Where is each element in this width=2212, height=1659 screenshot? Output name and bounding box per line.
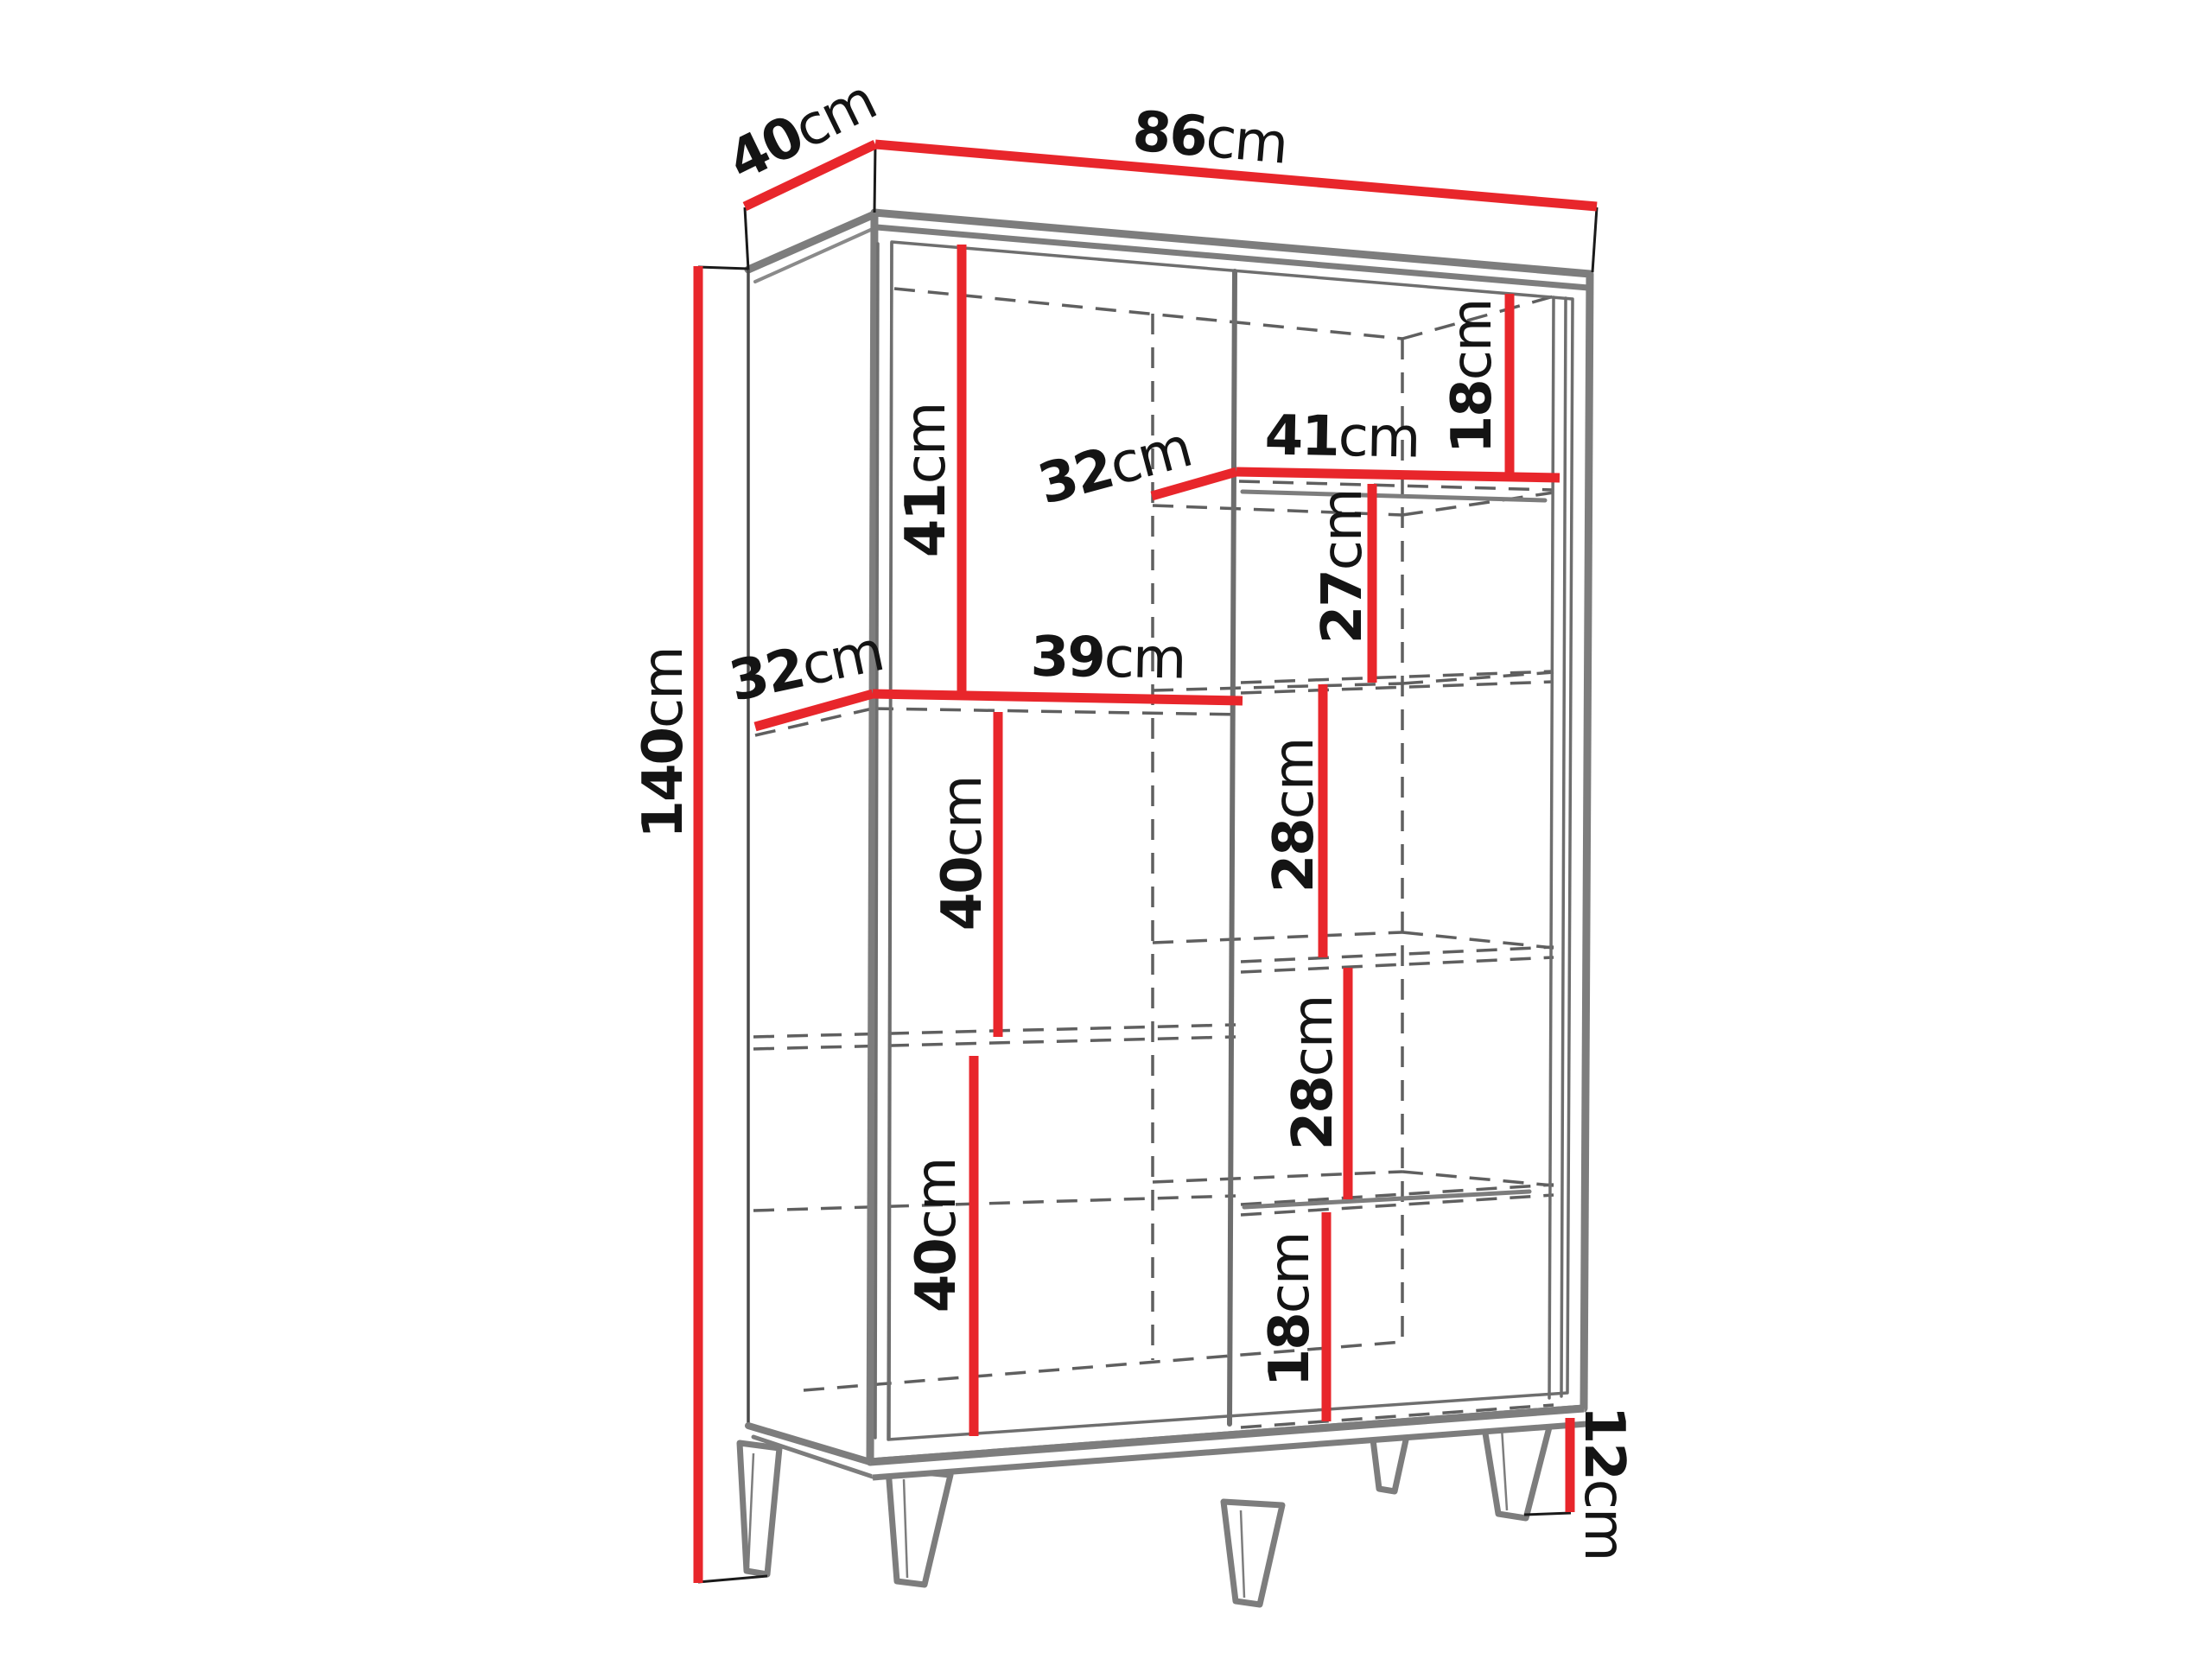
label-mid-shelf-width: 39cm <box>1030 629 1185 687</box>
label-right-gap-28-upper-value: 28 <box>1262 819 1326 893</box>
label-top-shelf-width: 41cm <box>1264 408 1420 466</box>
tick-height-bottom <box>698 1576 767 1582</box>
label-left-mid-gap-value: 40 <box>931 857 995 931</box>
label-left-mid-gap: 40cm <box>935 777 990 931</box>
leg-center <box>1224 1502 1282 1605</box>
tick-height-top <box>698 267 748 269</box>
label-right-bottom-gap-unit: cm <box>1258 1233 1322 1314</box>
leg-front-left <box>888 1469 950 1585</box>
tick-leg-bottom <box>1524 1513 1571 1515</box>
tick-top-front-corner <box>874 145 875 213</box>
label-right-gap-27-value: 27 <box>1311 570 1375 644</box>
right-wall-inner-b <box>1561 298 1566 1396</box>
dimension-diagram: 40cm 86cm 140cm 18cm 32cm 41cm 41cm 27cm… <box>0 0 2212 1659</box>
label-left-top-gap: 41cm <box>899 404 954 558</box>
label-right-top-gap-value: 18 <box>1440 380 1504 454</box>
tick-width-right <box>1592 207 1597 272</box>
tick-depth-back <box>745 207 748 270</box>
right-shelf3-back <box>1153 932 1402 943</box>
side-panel-face <box>748 213 874 1462</box>
right-shelf4-depth <box>1402 1172 1554 1185</box>
right-wall-inner-a <box>1549 297 1554 1398</box>
label-left-mid-gap-unit: cm <box>931 777 995 858</box>
label-mid-shelf-width-unit: cm <box>1103 626 1185 692</box>
dim-line-39-mid-shelf <box>873 694 1243 701</box>
middle-divider <box>1230 271 1235 1424</box>
label-left-top-gap-value: 41 <box>894 484 958 557</box>
side-panel <box>748 213 874 1477</box>
label-top-width-value: 86 <box>1130 99 1209 169</box>
label-right-top-gap-unit: cm <box>1440 300 1504 381</box>
label-right-gap-28-lower: 28cm <box>1286 996 1341 1151</box>
label-right-gap-27: 27cm <box>1315 490 1370 645</box>
label-right-gap-28-upper: 28cm <box>1267 739 1322 893</box>
label-left-top-gap-unit: cm <box>894 404 958 485</box>
label-top-shelf-width-value: 41 <box>1264 404 1338 468</box>
label-mid-shelf-width-value: 39 <box>1030 625 1104 690</box>
label-right-top-gap: 18cm <box>1445 300 1500 454</box>
right-shelf1-front-solid <box>1243 492 1545 500</box>
label-top-width-unit: cm <box>1204 106 1290 177</box>
label-left-bottom-gap-unit: cm <box>905 1159 969 1240</box>
cabinet-drawing <box>0 0 2212 1659</box>
right-shelf2-back <box>1153 683 1402 690</box>
label-leg-height: 12cm <box>1576 1406 1631 1560</box>
label-right-gap-28-lower-value: 28 <box>1281 1077 1345 1150</box>
right-shelf3-top <box>1241 947 1554 962</box>
back-top-edge <box>894 289 1402 339</box>
right-shelf3-depth <box>1402 932 1554 948</box>
label-right-gap-28-lower-unit: cm <box>1281 996 1345 1077</box>
label-left-bottom-gap: 40cm <box>909 1159 964 1313</box>
leg-back-left <box>740 1443 779 1574</box>
label-top-shelf-width-unit: cm <box>1338 405 1420 471</box>
left-wall-inner-b <box>889 243 892 1439</box>
label-top-width: 86cm <box>1130 104 1288 172</box>
label-height: 140cm <box>636 647 691 838</box>
label-left-bottom-gap-value: 40 <box>905 1239 969 1313</box>
dim-line-41-top-shelf <box>1236 472 1560 478</box>
label-right-bottom-gap: 18cm <box>1262 1233 1318 1388</box>
left-shelf-upper-underside <box>873 709 1243 715</box>
right-shelf4-back <box>1153 1172 1402 1182</box>
right-shelf1-front-hidden <box>1239 481 1554 490</box>
label-height-unit: cm <box>632 647 696 728</box>
label-right-bottom-gap-value: 18 <box>1258 1313 1322 1387</box>
label-right-gap-27-unit: cm <box>1311 490 1375 571</box>
label-leg-height-unit: cm <box>1572 1479 1636 1560</box>
label-right-gap-28-upper-unit: cm <box>1262 739 1326 820</box>
label-height-value: 140 <box>632 728 696 839</box>
label-leg-height-value: 12 <box>1572 1406 1636 1479</box>
